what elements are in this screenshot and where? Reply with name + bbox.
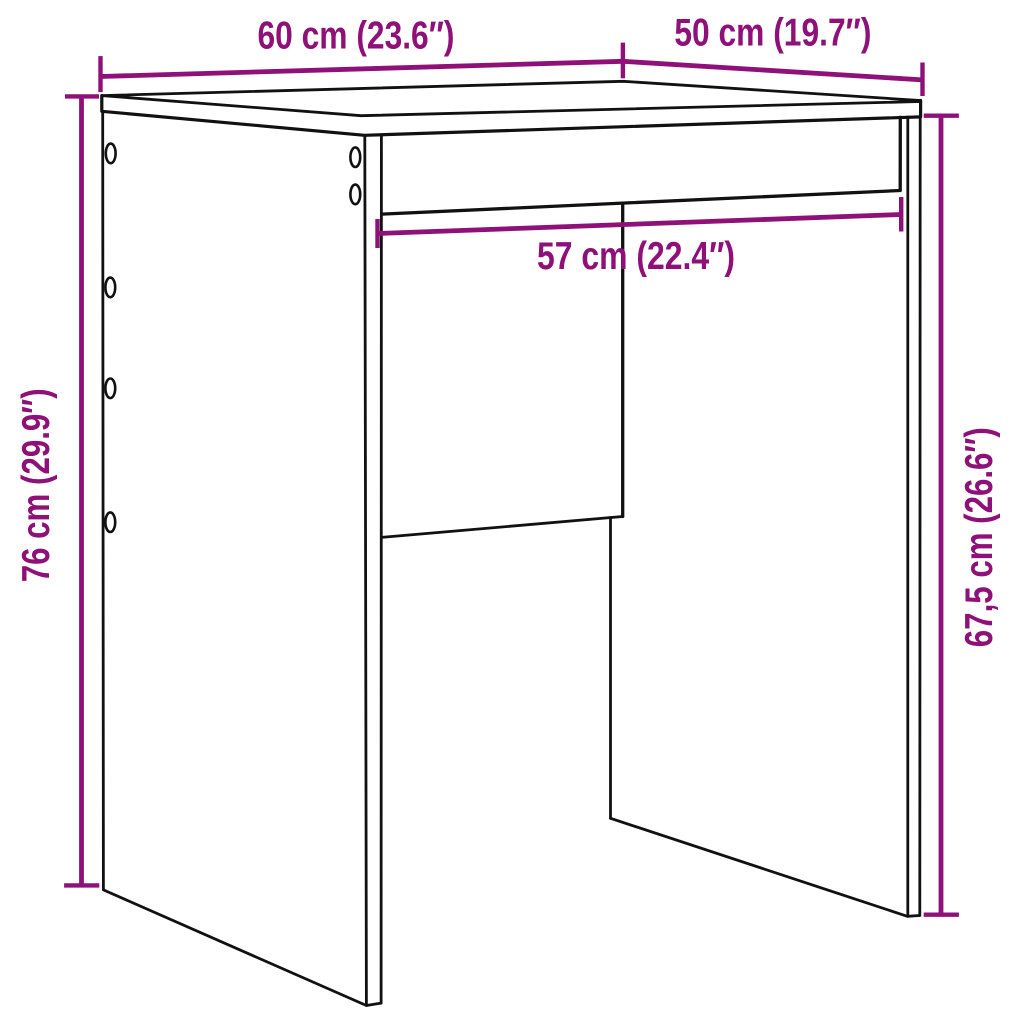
svg-text:76 cm (29.9″): 76 cm (29.9″): [15, 388, 58, 582]
svg-text:67,5 cm (26.6″): 67,5 cm (26.6″): [958, 427, 1001, 647]
svg-text:57 cm (22.4″): 57 cm (22.4″): [537, 235, 735, 278]
svg-text:50 cm (19.7″): 50 cm (19.7″): [674, 12, 871, 55]
svg-text:60 cm (23.6″): 60 cm (23.6″): [258, 15, 455, 58]
